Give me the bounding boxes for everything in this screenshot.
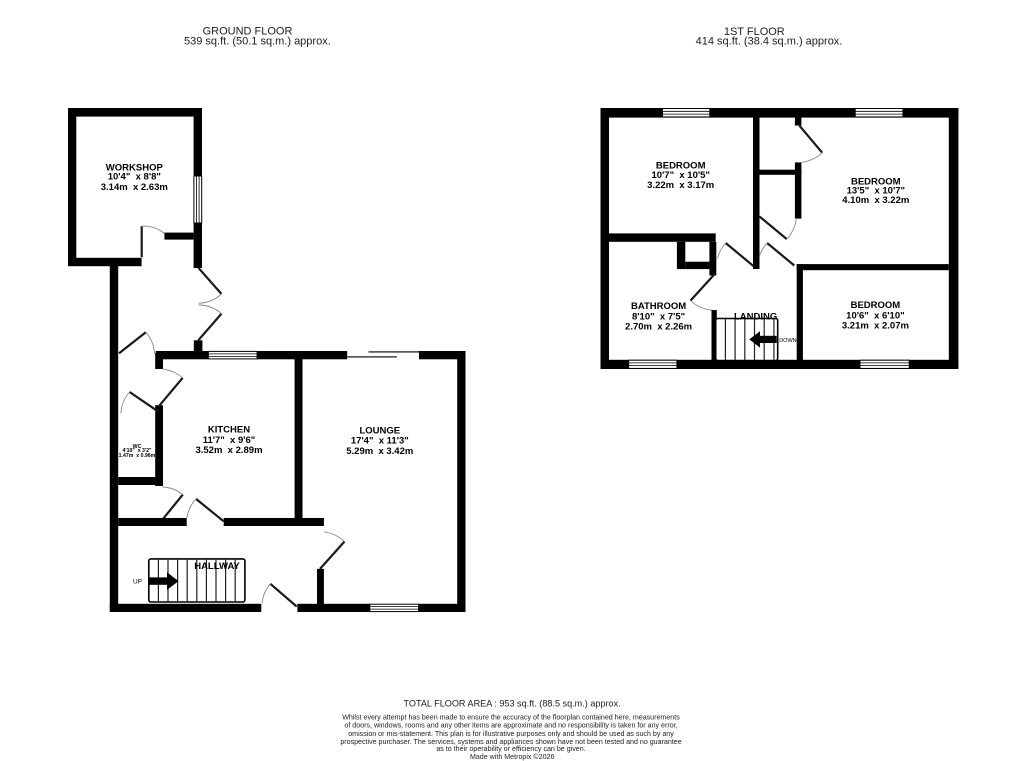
svg-text:UP: UP [133, 579, 142, 586]
svg-text:Made with Metropix ©2026: Made with Metropix ©2026 [470, 753, 555, 761]
svg-text:4.10m x 3.22m: 4.10m x 3.22m [842, 195, 909, 206]
svg-text:5.29m x 3.42m: 5.29m x 3.42m [346, 446, 413, 457]
svg-text:3.52m x 2.89m: 3.52m x 2.89m [195, 445, 262, 456]
svg-text:as to their operability or eff: as to their operability or efficiency ca… [436, 745, 585, 753]
svg-text:3.22m x 3.17m: 3.22m x 3.17m [647, 180, 714, 191]
svg-text:Whilst every attempt has been: Whilst every attempt has been made to en… [342, 713, 680, 721]
svg-text:3.21m x 2.07m: 3.21m x 2.07m [842, 321, 909, 332]
svg-text:1.47m x 0.96m: 1.47m x 0.96m [119, 453, 156, 459]
svg-text:HALLWAY: HALLWAY [194, 561, 240, 572]
svg-text:omission or mis-statement. Thi: omission or mis-statement. This plan is … [348, 730, 674, 738]
svg-text:TOTAL FLOOR AREA : 953 sq.ft.: TOTAL FLOOR AREA : 953 sq.ft. (88.5 sq.m… [404, 699, 621, 709]
svg-text:414 sq.ft. (38.4 sq.m.) approx: 414 sq.ft. (38.4 sq.m.) approx. [696, 36, 843, 48]
svg-text:of doors, windows, rooms and a: of doors, windows, rooms and any other i… [344, 722, 677, 730]
svg-text:DOWN: DOWN [779, 338, 796, 344]
svg-text:17'4" x 11'3": 17'4" x 11'3" [351, 436, 409, 447]
svg-text:LANDING: LANDING [734, 312, 777, 323]
svg-text:539 sq.ft. (50.1 sq.m.) approx: 539 sq.ft. (50.1 sq.m.) approx. [184, 35, 331, 47]
svg-text:BATHROOM: BATHROOM [631, 301, 686, 312]
svg-text:2.70m x 2.26m: 2.70m x 2.26m [625, 322, 692, 333]
svg-text:3.14m x 2.63m: 3.14m x 2.63m [101, 182, 168, 193]
svg-text:BEDROOM: BEDROOM [851, 300, 901, 311]
